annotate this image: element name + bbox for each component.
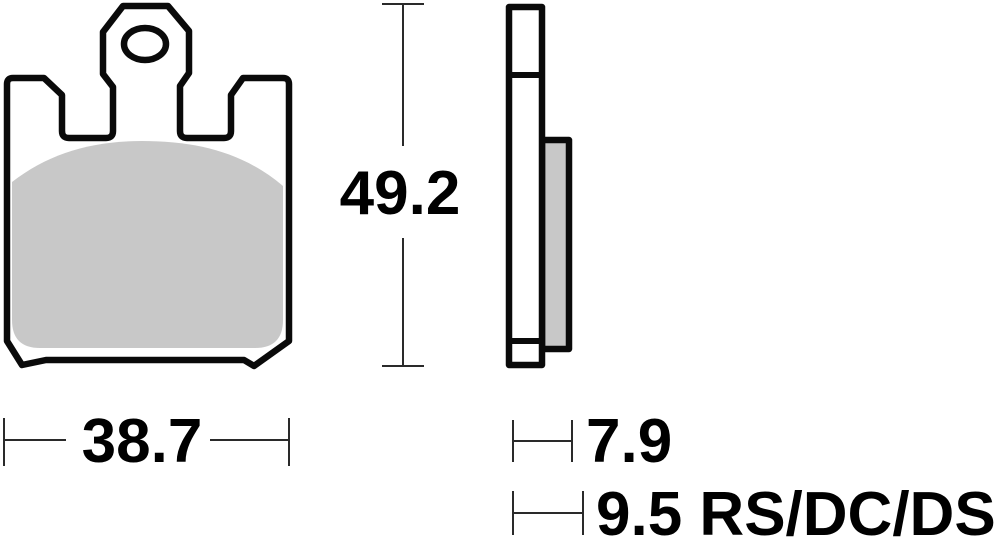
brake-pad-technical-drawing: 49.2 38.7 7.9 9.5 RS/DC/DS [0, 0, 1000, 540]
technical-drawing-canvas: 49.2 38.7 7.9 9.5 RS/DC/DS [0, 0, 1000, 540]
friction-thickness-dimension: 7.9 [513, 407, 672, 476]
friction-material-side [542, 140, 569, 349]
profile-view [509, 7, 569, 365]
front-view [7, 6, 289, 366]
height-dim-value: 49.2 [340, 159, 461, 228]
friction-thickness-value: 7.9 [586, 407, 672, 476]
height-dimension: 49.2 [340, 4, 461, 366]
width-dim-value: 38.7 [82, 407, 203, 476]
mounting-hole [124, 28, 166, 60]
total-thickness-value: 9.5 RS/DC/DS [596, 480, 996, 540]
width-dimension: 38.7 [4, 407, 289, 476]
backplate-side [509, 7, 542, 365]
total-thickness-dimension: 9.5 RS/DC/DS [513, 480, 996, 540]
friction-material-front [12, 141, 283, 348]
